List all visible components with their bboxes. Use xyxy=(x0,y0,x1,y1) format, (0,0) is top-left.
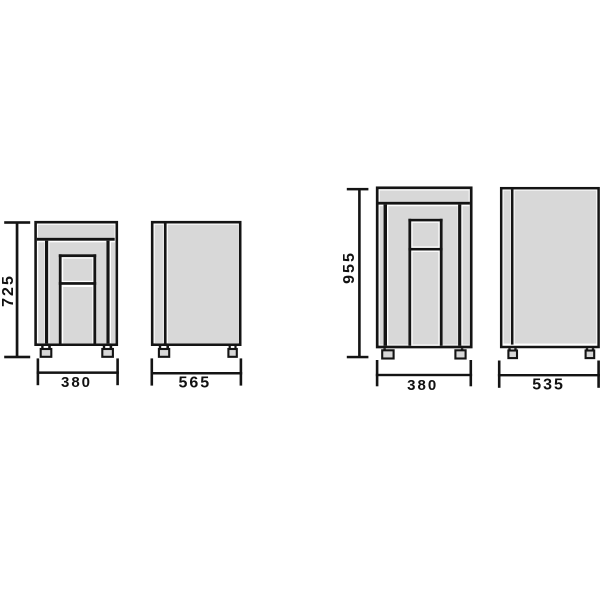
svg-text:955: 955 xyxy=(341,251,358,284)
svg-text:380: 380 xyxy=(61,374,92,391)
svg-text:380: 380 xyxy=(407,377,438,394)
svg-text:725: 725 xyxy=(0,274,17,307)
svg-text:565: 565 xyxy=(178,374,211,391)
svg-text:535: 535 xyxy=(532,376,565,393)
